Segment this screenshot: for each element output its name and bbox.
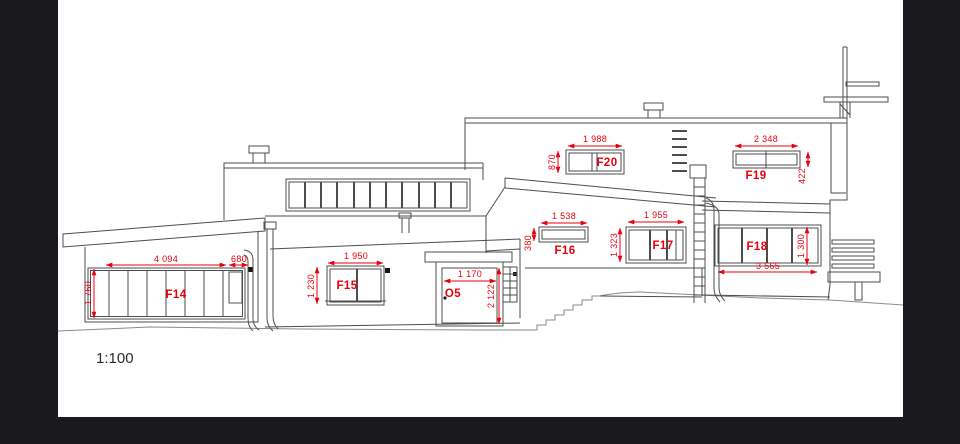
dim-o5-width: 1 170: [458, 269, 482, 279]
dim-f19-height: 422: [797, 168, 807, 184]
dim-f18-height: 1 300: [796, 234, 806, 258]
dim-f15-height: 1 230: [306, 274, 316, 298]
drawing-viewer: 4 094 680 1 760 F14 1 950 1 230 F15 1 17…: [0, 0, 960, 444]
dim-f18-width: 3 565: [756, 261, 780, 271]
window-label-f16: F16: [554, 245, 575, 257]
marker-square-f15: [385, 268, 390, 273]
dim-f14-width-side: 680: [231, 254, 247, 264]
dim-f14-height: 1 760: [83, 281, 93, 305]
window-label-f17: F17: [652, 240, 673, 252]
window-label-f15: F15: [336, 280, 357, 292]
window-label-f19: F19: [745, 170, 766, 182]
dim-f17-height: 1 323: [609, 233, 619, 257]
dim-f17-width: 1 955: [644, 210, 668, 220]
window-label-o5: O5: [445, 288, 461, 300]
window-label-f18: F18: [746, 241, 767, 253]
dim-f15-width: 1 950: [344, 251, 368, 261]
window-label-f14: F14: [165, 289, 186, 301]
dim-f14-width: 4 094: [154, 254, 178, 264]
dim-f16-width: 1 538: [552, 211, 576, 221]
elevation-canvas: 4 094 680 1 760 F14 1 950 1 230 F15 1 17…: [0, 0, 960, 444]
dim-f16-height: 380: [523, 235, 533, 251]
marker-square-f14: [248, 267, 253, 272]
paper-sheet: [58, 0, 903, 417]
dim-f20-width: 1 988: [583, 134, 607, 144]
dim-o5-height: 2 122: [486, 284, 496, 308]
dim-f19-width: 2 348: [754, 134, 778, 144]
window-label-f20: F20: [596, 157, 617, 169]
dim-f20-height: 870: [547, 154, 557, 170]
scale-label: 1:100: [96, 350, 134, 367]
